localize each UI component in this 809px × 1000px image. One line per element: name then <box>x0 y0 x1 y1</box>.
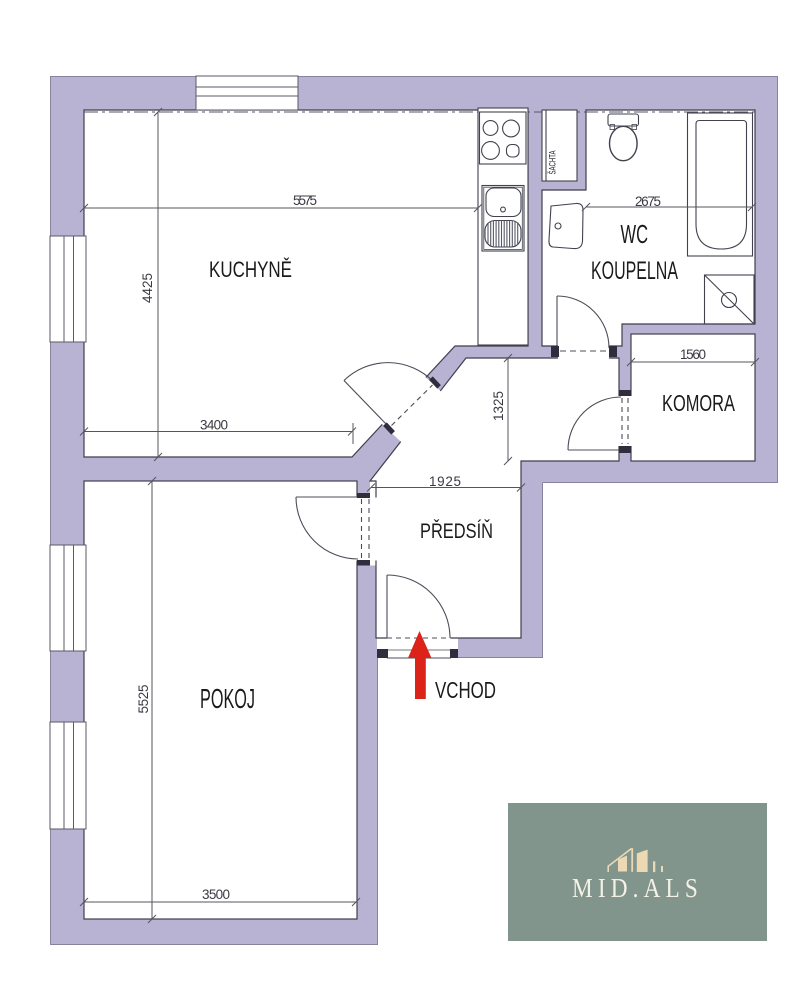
svg-text:VCHOD: VCHOD <box>435 677 496 703</box>
svg-text:KOMORA: KOMORA <box>662 390 735 416</box>
svg-text:ŠACHTA: ŠACHTA <box>548 150 559 174</box>
svg-text:1560: 1560 <box>680 347 706 362</box>
svg-text:3500: 3500 <box>202 887 230 902</box>
svg-text:WC: WC <box>621 219 649 249</box>
svg-text:5575: 5575 <box>293 193 317 208</box>
svg-text:1925: 1925 <box>429 474 461 489</box>
svg-text:1325: 1325 <box>491 391 506 421</box>
svg-text:4425: 4425 <box>140 273 155 303</box>
svg-text:5525: 5525 <box>136 685 151 714</box>
svg-text:2675: 2675 <box>635 194 661 209</box>
svg-text:PŘEDSÍŇ: PŘEDSÍŇ <box>420 520 493 543</box>
svg-text:MID.ALS: MID.ALS <box>572 873 703 903</box>
svg-text:KOUPELNA: KOUPELNA <box>591 257 678 285</box>
svg-text:3400: 3400 <box>200 418 228 433</box>
svg-text:KUCHYNĚ: KUCHYNĚ <box>209 257 292 282</box>
svg-text:POKOJ: POKOJ <box>200 683 255 714</box>
